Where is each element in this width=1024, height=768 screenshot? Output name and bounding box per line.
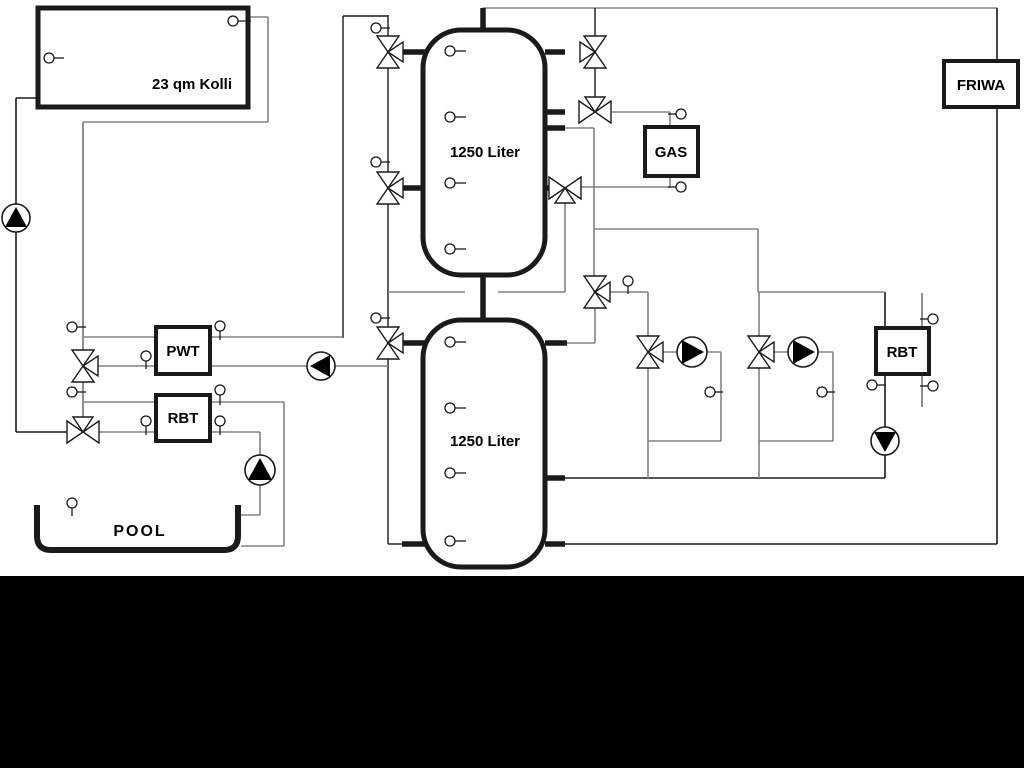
pump-rbt-return-pump-icon [871,427,899,455]
pool-label: POOL [113,523,166,540]
hydraulic-schematic: POOL1250 Liter1250 Liter23 qm KolliPWTRB… [0,0,1024,768]
friwa-box-label: FRIWA [957,77,1005,94]
rbt-pool-box-label: RBT [168,410,199,427]
pump-circuit-2-pump-icon [788,337,818,367]
pump-pool-pump-icon [245,455,275,485]
pump-solar-pump-icon [2,204,30,232]
rbt-heating-box-label: RBT [887,344,918,361]
buffer-tank-1-label: 1250 Liter [450,144,520,161]
pwt-box-label: PWT [166,343,199,360]
bottom-black-band [0,576,1024,768]
collector-box-label: 23 qm Kolli [152,76,232,93]
schematic-svg: POOL1250 Liter1250 Liter23 qm KolliPWTRB… [0,0,1024,768]
buffer-tank-2-label: 1250 Liter [450,433,520,450]
pump-circuit-1-pump-icon [677,337,707,367]
gas-box-label: GAS [655,144,688,161]
pump-pwt-pump-icon [307,352,335,380]
